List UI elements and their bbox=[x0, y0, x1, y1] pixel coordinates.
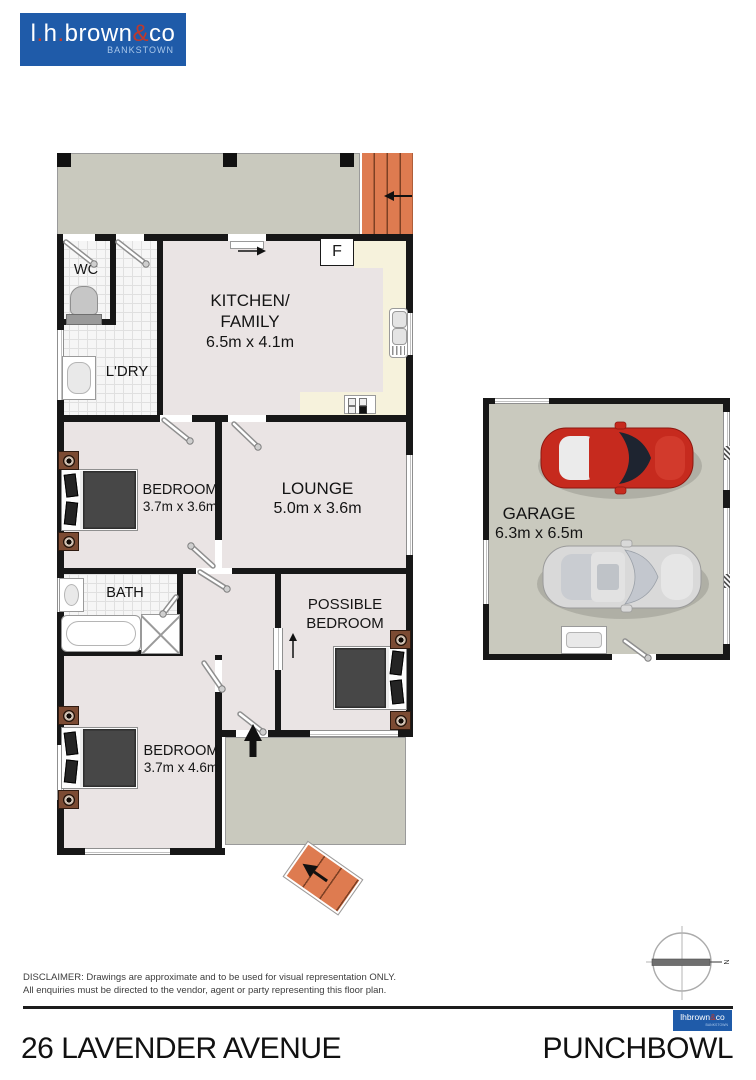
logo-part: brown bbox=[65, 20, 133, 47]
bedroom1-dims: 3.7m x 3.6m bbox=[115, 499, 245, 516]
room-label-possible-bedroom: POSSIBLE BEDROOM bbox=[290, 596, 400, 634]
wall bbox=[57, 568, 413, 574]
cooktop-icon bbox=[344, 395, 376, 414]
door-opening bbox=[215, 540, 222, 568]
kitchen-sink-icon bbox=[389, 308, 408, 358]
wall bbox=[723, 398, 730, 412]
window-icon bbox=[85, 848, 170, 855]
kitchen-bench bbox=[354, 240, 406, 268]
garage-dims: 6.3m x 6.5m bbox=[480, 524, 598, 544]
room-label-laundry: L'DRY bbox=[87, 363, 167, 382]
door-marker bbox=[724, 574, 730, 588]
kitchen-label-line1: KITCHEN/ bbox=[175, 290, 325, 311]
door-marker bbox=[724, 446, 730, 460]
logo-part: co bbox=[149, 20, 175, 47]
rear-verandah bbox=[225, 737, 406, 845]
room-label-garage: GARAGE 6.3m x 6.5m bbox=[480, 503, 598, 544]
stairs-icon bbox=[360, 153, 413, 237]
bedroom2-dims: 3.7m x 4.6m bbox=[116, 760, 246, 777]
lounge-label: LOUNGE bbox=[245, 478, 390, 499]
footer-divider bbox=[23, 1006, 733, 1009]
door-opening bbox=[196, 568, 232, 574]
toilet-icon bbox=[66, 314, 102, 325]
bedside-table-icon bbox=[390, 711, 411, 730]
bed-icon bbox=[333, 646, 407, 710]
door-opening bbox=[612, 654, 656, 660]
wall bbox=[110, 240, 116, 324]
bedroom1-label: BEDROOM bbox=[115, 481, 245, 499]
door-opening bbox=[63, 234, 95, 241]
room-label-bedroom1: BEDROOM 3.7m x 3.6m bbox=[115, 481, 245, 516]
wall bbox=[157, 240, 163, 422]
bath-label: BATH bbox=[95, 584, 155, 602]
disclaimer-line2: All enquiries must be directed to the ve… bbox=[23, 984, 396, 997]
compass-icon: N bbox=[638, 916, 734, 1012]
wc-label: WC bbox=[56, 261, 116, 279]
logo-dot: . bbox=[36, 20, 43, 47]
footer-logo-tagline: BANKSTOWN bbox=[673, 1023, 732, 1027]
logo-ampersand: & bbox=[133, 20, 150, 47]
room-label-lounge: LOUNGE 5.0m x 3.6m bbox=[245, 478, 390, 519]
bathtub-icon bbox=[61, 615, 141, 652]
bedside-table-icon bbox=[58, 790, 79, 809]
fridge-label: F bbox=[320, 238, 354, 266]
logo-part: brown bbox=[687, 1012, 710, 1022]
footer-logo-text: lhbrown&co bbox=[673, 1013, 732, 1022]
kitchen-label-line2: FAMILY bbox=[175, 311, 325, 332]
door-opening bbox=[228, 234, 266, 241]
door-threshold bbox=[230, 241, 264, 249]
bedside-table-icon bbox=[58, 706, 79, 725]
bedside-table-icon bbox=[58, 451, 79, 470]
agency-logo-text: l.h.brown&co bbox=[20, 22, 186, 46]
laundry-label: L'DRY bbox=[87, 363, 167, 382]
verandah-post bbox=[57, 153, 71, 167]
stairs-icon bbox=[284, 842, 362, 914]
verandah-post bbox=[340, 153, 354, 167]
street-address: 26 LAVENDER AVENUE bbox=[21, 1032, 341, 1066]
shower-icon bbox=[141, 614, 180, 654]
door-opening bbox=[215, 660, 222, 692]
footer-logo: lhbrown&co BANKSTOWN bbox=[673, 1010, 732, 1031]
room-label-wc: WC bbox=[56, 261, 116, 279]
room-label-kitchen: KITCHEN/ FAMILY 6.5m x 4.1m bbox=[175, 290, 325, 353]
window-icon bbox=[310, 730, 398, 737]
room-label-bath: BATH bbox=[95, 584, 155, 602]
lounge-dims: 5.0m x 3.6m bbox=[245, 499, 390, 519]
wall bbox=[723, 490, 730, 508]
logo-part: co bbox=[716, 1012, 725, 1022]
door-opening bbox=[160, 415, 192, 422]
basin-icon bbox=[59, 578, 84, 612]
door-opening bbox=[116, 234, 144, 241]
logo-dot: . bbox=[57, 20, 64, 47]
bedroom2-label: BEDROOM bbox=[116, 742, 246, 760]
agency-logo: l.h.brown&co BANKSTOWN bbox=[20, 13, 186, 66]
floorplan-page: { "logo": { "part_l": "l", "dot": ".", "… bbox=[0, 0, 756, 1080]
window-icon bbox=[495, 398, 549, 404]
bedside-table-icon bbox=[58, 532, 79, 551]
stairs-direction-arrow bbox=[287, 845, 360, 912]
garage-tub-icon bbox=[561, 626, 607, 654]
disclaimer: DISCLAIMER: Drawings are approximate and… bbox=[23, 971, 396, 997]
sliding-door-icon bbox=[273, 628, 283, 670]
entry-door-opening bbox=[236, 730, 268, 737]
door-opening bbox=[228, 415, 266, 422]
possible-bedroom-line2: BEDROOM bbox=[290, 615, 400, 634]
wall bbox=[723, 644, 730, 660]
verandah-post bbox=[223, 153, 237, 167]
window-icon bbox=[483, 540, 489, 604]
suburb: PUNCHBOWL bbox=[542, 1032, 733, 1066]
room-label-bedroom2: BEDROOM 3.7m x 4.6m bbox=[116, 742, 246, 777]
wall bbox=[483, 654, 730, 660]
garage-label: GARAGE bbox=[480, 503, 598, 524]
compass-north-label: N bbox=[722, 959, 729, 964]
window-icon bbox=[406, 455, 413, 555]
possible-bedroom-line1: POSSIBLE bbox=[290, 596, 400, 615]
disclaimer-line1: DISCLAIMER: Drawings are approximate and… bbox=[23, 971, 396, 984]
kitchen-dims: 6.5m x 4.1m bbox=[175, 333, 325, 353]
logo-part: h bbox=[44, 20, 58, 47]
front-verandah bbox=[57, 153, 360, 237]
toilet-icon bbox=[70, 286, 98, 315]
